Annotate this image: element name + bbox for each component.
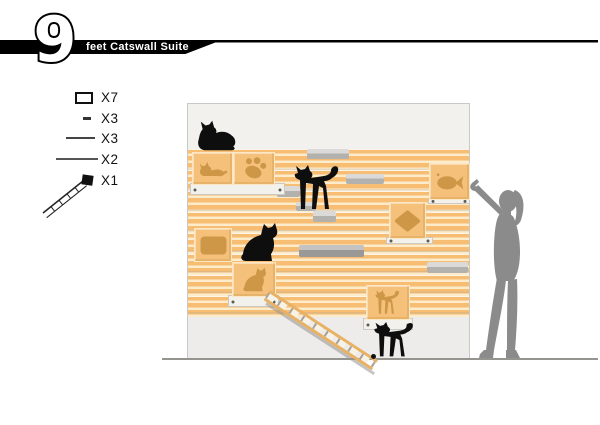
- wall-shelf: [346, 174, 384, 184]
- floor-cat-silhouette: [372, 322, 418, 358]
- wall-shelf: [313, 211, 336, 222]
- crouching-cat-silhouette: [196, 119, 238, 152]
- legend-count-boxes: X7: [101, 90, 119, 105]
- medium-shelf-icon: [66, 137, 95, 139]
- legend-count-long-shelves: X2: [101, 152, 119, 167]
- sitting-cat-silhouette: [239, 223, 279, 263]
- long-shelf-icon: [56, 158, 98, 160]
- lying-cat-icon: [197, 159, 229, 179]
- big-number-9: 9: [26, 4, 84, 72]
- cubby-box-paw: [233, 152, 275, 185]
- small-shelf-icon: [83, 117, 91, 120]
- legend-count-medium-shelves: X3: [101, 131, 119, 146]
- cubby-box-diamond: [389, 202, 426, 239]
- legend-count-small-shelves: X3: [101, 111, 119, 126]
- sitting-cat-icon: [242, 267, 267, 293]
- cubby-box-lying-cat: [192, 152, 233, 185]
- catswall-product-diagram: feet Catswall Suite 9 X7 X3 X3 X2 X1: [0, 0, 600, 425]
- climbing-cat-silhouette: [292, 165, 344, 211]
- walking-cat-icon: [374, 290, 402, 315]
- wall-shelf: [307, 149, 349, 159]
- fish-icon: [434, 171, 465, 193]
- ladder-icon: [40, 168, 98, 220]
- cubby-box-rounded-rect: [194, 228, 232, 262]
- rounded-rectangle-icon: [200, 236, 227, 255]
- diamond-icon: [394, 209, 421, 233]
- cube-box-icon: [75, 92, 93, 104]
- cubby-box-walking-cat: [366, 285, 410, 320]
- wall-shelf: [427, 262, 468, 273]
- woman-silhouette: [466, 178, 546, 362]
- cubby-box-fish: [429, 163, 470, 200]
- wall-shelf: [299, 245, 364, 257]
- paw-print-icon: [241, 156, 268, 181]
- header-title: feet Catswall Suite: [86, 41, 189, 53]
- legend-count-ladders: X1: [101, 173, 119, 188]
- svg-text:9: 9: [33, 4, 76, 72]
